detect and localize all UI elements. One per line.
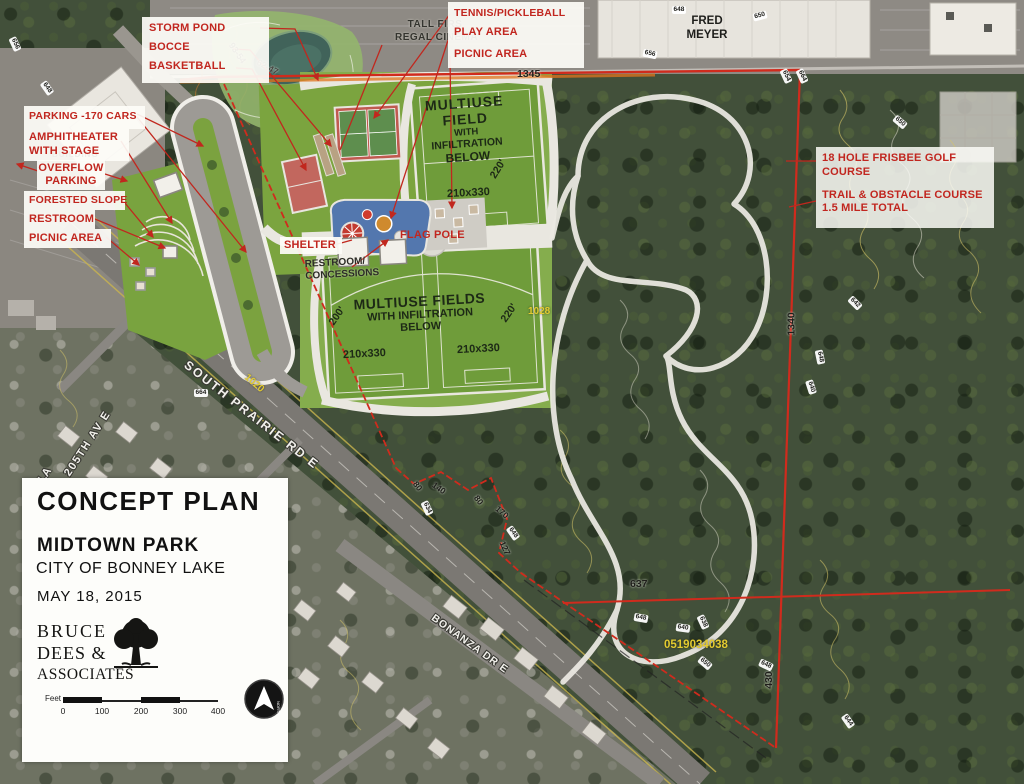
- trails-layer: [552, 97, 767, 682]
- callout-basketball: BASKETBALL: [149, 59, 269, 75]
- callout-overflow-l1: OVERFLOW: [37, 162, 105, 175]
- firm-name-line2: DEES &: [37, 644, 107, 662]
- scale-tick-100: 100: [95, 706, 109, 716]
- callout-frisbee-l1: 18 HOLE FRISBEE GOLF: [822, 152, 994, 166]
- callout-box-top: TENNIS/PICKLEBALL PLAY AREA PICNIC AREA: [448, 2, 584, 68]
- callout-play-area: PLAY AREA: [454, 25, 584, 41]
- fred-meyer-label: FRED MEYER: [683, 14, 731, 43]
- dim-lower-right: 430: [763, 671, 775, 689]
- tree-logo-icon: [106, 616, 166, 674]
- callout-restroom: RESTROOM: [29, 212, 95, 228]
- fred-meyer-line2: MEYER: [683, 28, 731, 42]
- parcel-number: 0519034038: [664, 639, 728, 651]
- scale-bar-segment2: [141, 697, 180, 703]
- plan-title: CONCEPT PLAN: [37, 486, 260, 517]
- callout-box-restroom: RESTROOM: [24, 210, 95, 229]
- callout-box-amphitheater: AMPHITHEATER WITH STAGE: [24, 129, 129, 161]
- callout-flag-pole: FLAG POLE: [400, 228, 465, 244]
- callout-amphitheater-l1: AMPHITHEATER: [29, 131, 129, 145]
- callout-frisbee-l2: COURSE: [822, 166, 994, 180]
- callout-shelter: SHELTER: [284, 238, 342, 254]
- callout-trail-l1: TRAIL & OBSTACLE COURSE: [822, 189, 994, 203]
- callout-picnic-top: PICNIC AREA: [454, 47, 584, 63]
- callout-tennis: TENNIS/PICKLEBALL: [454, 6, 584, 21]
- concept-plan-map: 648 650 656 654 664 642 648 640 648 640 …: [0, 0, 1024, 784]
- callout-storm-pond: STORM POND: [149, 21, 269, 37]
- park-name: MIDTOWN PARK: [37, 535, 199, 557]
- dim-right: 1340: [786, 312, 798, 335]
- fields-bottom-label: MULTIUSE FIELDS WITH INFILTRATION BELOW: [344, 289, 496, 337]
- scale-tick-0: 0: [61, 706, 66, 716]
- road-grade-1028: 1028: [528, 306, 550, 317]
- scale-feet-label: Feet: [45, 694, 61, 703]
- scale-tick-200: 200: [134, 706, 148, 716]
- callout-box-northwest: STORM POND BOCCE BASKETBALL: [142, 17, 269, 83]
- contour-tag: 664: [194, 389, 208, 397]
- callout-box-forested: FORESTED SLOPE: [24, 191, 125, 210]
- dim-top: 1345: [517, 68, 540, 80]
- callout-overflow-l2: PARKING: [37, 175, 105, 188]
- callout-box-east: 18 HOLE FRISBEE GOLF COURSE TRAIL & OBST…: [816, 147, 994, 228]
- callout-amphitheater-l2: WITH STAGE: [29, 145, 129, 159]
- callout-box-parking: PARKING -170 CARS: [24, 106, 145, 129]
- scale-tick-300: 300: [173, 706, 187, 716]
- city-name: CITY OF BONNEY LAKE: [36, 560, 225, 578]
- size-field-top: 210x330: [447, 186, 490, 200]
- north-arrow-icon: NORTH: [243, 678, 285, 720]
- callout-box-picnic-left: PICNIC AREA: [24, 229, 111, 248]
- dim-middle: 637: [630, 578, 648, 590]
- scale-tick-400: 400: [211, 706, 225, 716]
- callout-trail-l2: 1.5 MILE TOTAL: [822, 202, 994, 216]
- contour-tag: 648: [672, 6, 686, 14]
- north-text: NORTH: [276, 701, 281, 715]
- field-top-label: MULTIUSE FIELD WITH INFILTRATION BELOW: [406, 91, 527, 168]
- title-block: CONCEPT PLAN MIDTOWN PARK CITY OF BONNEY…: [22, 478, 288, 762]
- callout-box-shelter: SHELTER: [280, 237, 342, 254]
- restroom-concessions-label: RESTROOM/ CONCESSIONS: [304, 255, 379, 283]
- fred-meyer-line1: FRED: [683, 14, 731, 28]
- size-field-left: 210x330: [343, 347, 386, 361]
- callout-parking: PARKING -170 CARS: [29, 109, 145, 124]
- callout-forested: FORESTED SLOPE: [29, 193, 125, 208]
- callout-picnic-left: PICNIC AREA: [29, 231, 111, 247]
- callout-bocce: BOCCE: [149, 40, 269, 56]
- firm-name-line1: BRUCE: [37, 622, 107, 640]
- scale-bar-segment1: [63, 697, 102, 703]
- size-field-right: 210x330: [457, 342, 500, 356]
- plan-date: MAY 18, 2015: [37, 588, 143, 605]
- callout-box-overflow: OVERFLOW PARKING: [37, 160, 105, 190]
